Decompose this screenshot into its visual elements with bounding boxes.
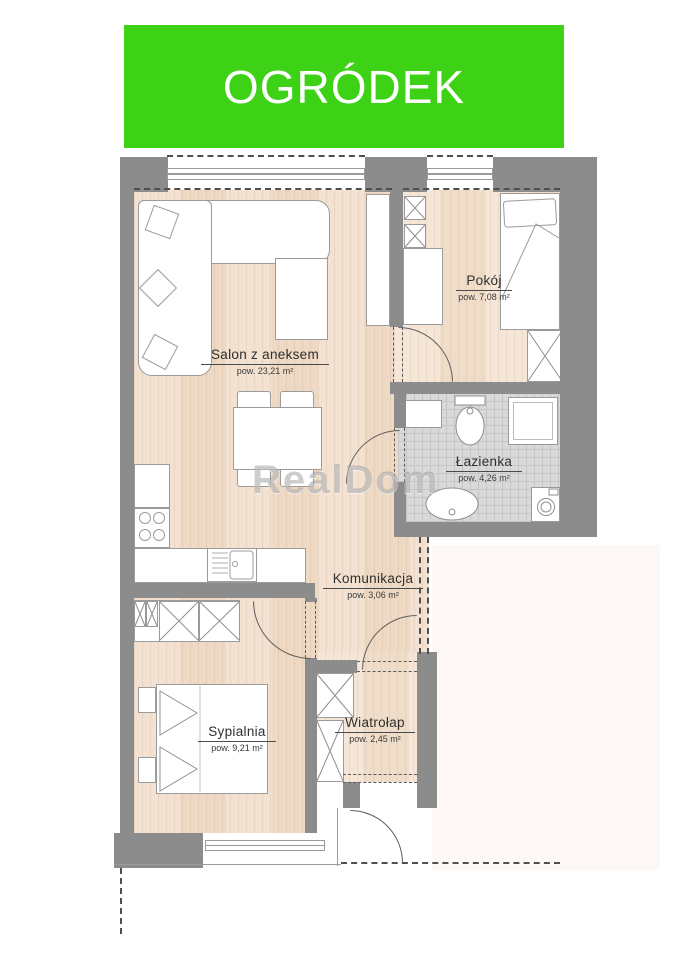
garden-banner: OGRÓDEK bbox=[124, 25, 564, 148]
room-label-salon: Salon z aneksem pow. 23,21 m² bbox=[185, 346, 345, 376]
room-name: Salon z aneksem bbox=[201, 347, 329, 365]
room-label-wiatrolap: Wiatrołap pow. 2,45 m² bbox=[317, 714, 433, 744]
washing-machine-drum bbox=[538, 489, 559, 516]
kitchen-sink bbox=[212, 551, 253, 579]
floor-plan-page: OGRÓDEK bbox=[0, 0, 678, 960]
room-area: pow. 3,06 m² bbox=[313, 590, 433, 600]
room-label-sypialnia: Sypialnia pow. 9,21 m² bbox=[177, 723, 297, 753]
room-name: Pokój bbox=[456, 273, 511, 291]
room-area: pow. 7,08 m² bbox=[424, 292, 544, 302]
room-label-lazienka: Łazienka pow. 4,26 m² bbox=[424, 453, 544, 483]
room-name: Łazienka bbox=[446, 454, 522, 472]
toilet bbox=[455, 396, 485, 445]
watermark: RealDom bbox=[252, 458, 439, 503]
room-label-komunikacja: Komunikacja pow. 3,06 m² bbox=[313, 570, 433, 600]
room-area: pow. 23,21 m² bbox=[185, 366, 345, 376]
room-name: Sypialnia bbox=[198, 724, 275, 742]
room-label-pokoj: Pokój pow. 7,08 m² bbox=[424, 272, 544, 302]
room-area: pow. 4,26 m² bbox=[424, 473, 544, 483]
stove-burners bbox=[140, 513, 165, 541]
room-area: pow. 9,21 m² bbox=[177, 743, 297, 753]
room-name: Wiatrołap bbox=[335, 715, 415, 733]
garden-banner-label: OGRÓDEK bbox=[223, 60, 465, 114]
room-area: pow. 2,45 m² bbox=[317, 734, 433, 744]
sofa-pillows bbox=[140, 205, 179, 369]
room-name: Komunikacja bbox=[323, 571, 424, 589]
